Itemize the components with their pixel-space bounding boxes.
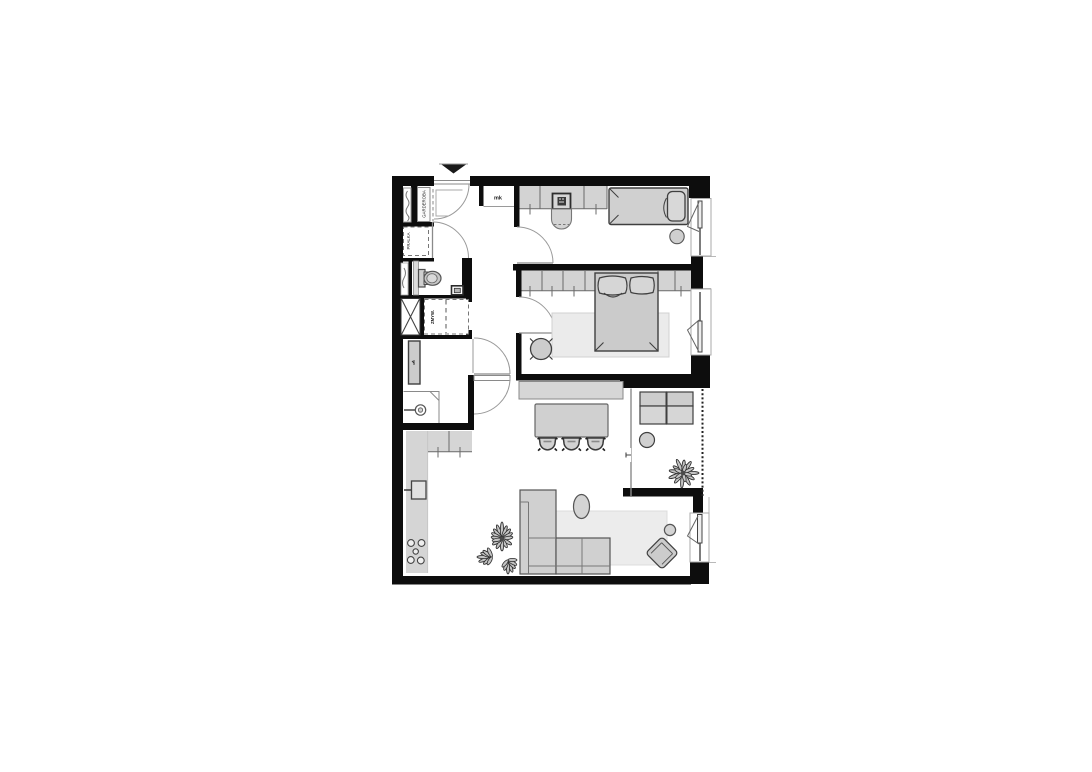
- svg-text:ZMYW.: ZMYW.: [430, 310, 435, 324]
- svg-text:mk: mk: [494, 196, 503, 202]
- svg-text:GARDEROBA: GARDEROBA: [422, 190, 427, 218]
- svg-text:PRALKA: PRALKA: [406, 232, 411, 249]
